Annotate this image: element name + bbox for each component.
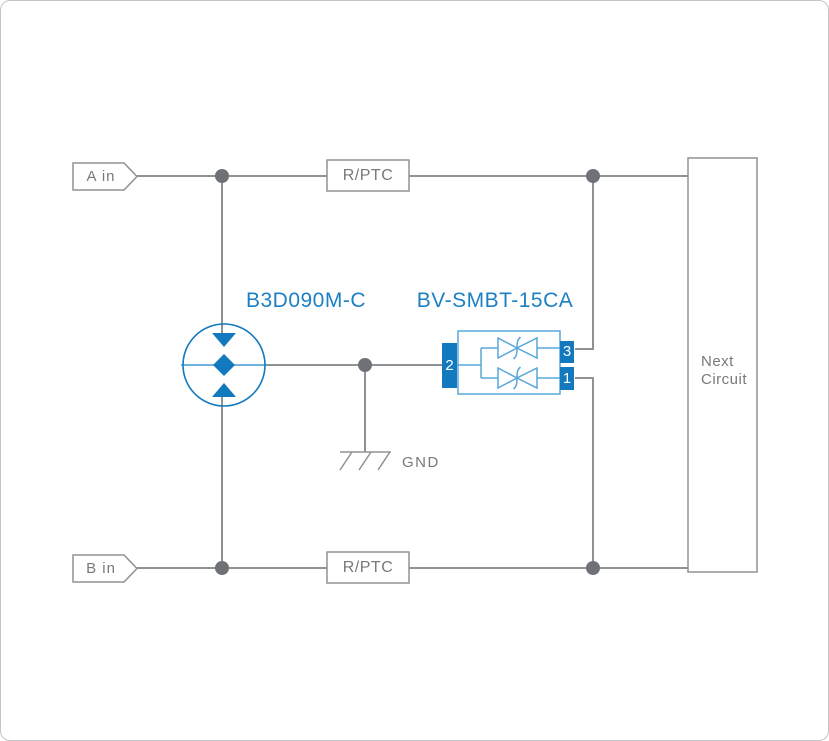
next-circuit-label: Next Circuit xyxy=(701,353,747,389)
rptc-top-label: R/PTC xyxy=(327,160,409,191)
gdt-symbol xyxy=(181,324,267,406)
tvs-zener-bottom-mark xyxy=(514,367,521,389)
b-in-label: B in xyxy=(73,555,129,582)
junction-dot xyxy=(215,561,229,575)
input-tags xyxy=(73,163,137,582)
gdt-part-number: B3D090M-C xyxy=(226,289,386,313)
tvs-body-box xyxy=(458,331,560,394)
tvs-part-number: BV-SMBT-15CA xyxy=(403,289,587,313)
junction-dot xyxy=(586,561,600,575)
component-boxes xyxy=(327,158,757,583)
ground-hatch xyxy=(340,452,390,470)
gdt-top-triangle-icon xyxy=(212,333,236,347)
tvs-outline xyxy=(457,331,560,394)
tvs-pin3-label: 3 xyxy=(560,341,574,363)
rptc-bottom-label: R/PTC xyxy=(327,552,409,583)
tvs-pin2-label: 2 xyxy=(442,343,457,388)
gnd-label: GND xyxy=(402,454,440,471)
wires xyxy=(137,176,688,568)
gdt-bottom-triangle-icon xyxy=(212,383,236,397)
junction-dot xyxy=(215,169,229,183)
next-circuit-line2: Circuit xyxy=(701,371,747,389)
junction-dots xyxy=(215,169,600,575)
tvs-zener-top-mark xyxy=(514,337,521,359)
gdt-diamond-icon xyxy=(213,354,235,376)
wire-pin1-drop xyxy=(575,378,593,568)
junction-dot xyxy=(358,358,372,372)
junction-dot xyxy=(586,169,600,183)
circuit-diagram: A in B in R/PTC R/PTC B3D090M-C BV-SMBT-… xyxy=(0,0,829,741)
tvs-symbol xyxy=(442,331,574,394)
tvs-pin1-label: 1 xyxy=(560,367,574,390)
ground-symbol xyxy=(340,452,391,470)
next-circuit-line1: Next xyxy=(701,353,747,371)
a-in-label: A in xyxy=(73,163,129,190)
gdt-electrodes xyxy=(212,333,236,397)
wire-pin3-riser xyxy=(575,176,593,349)
